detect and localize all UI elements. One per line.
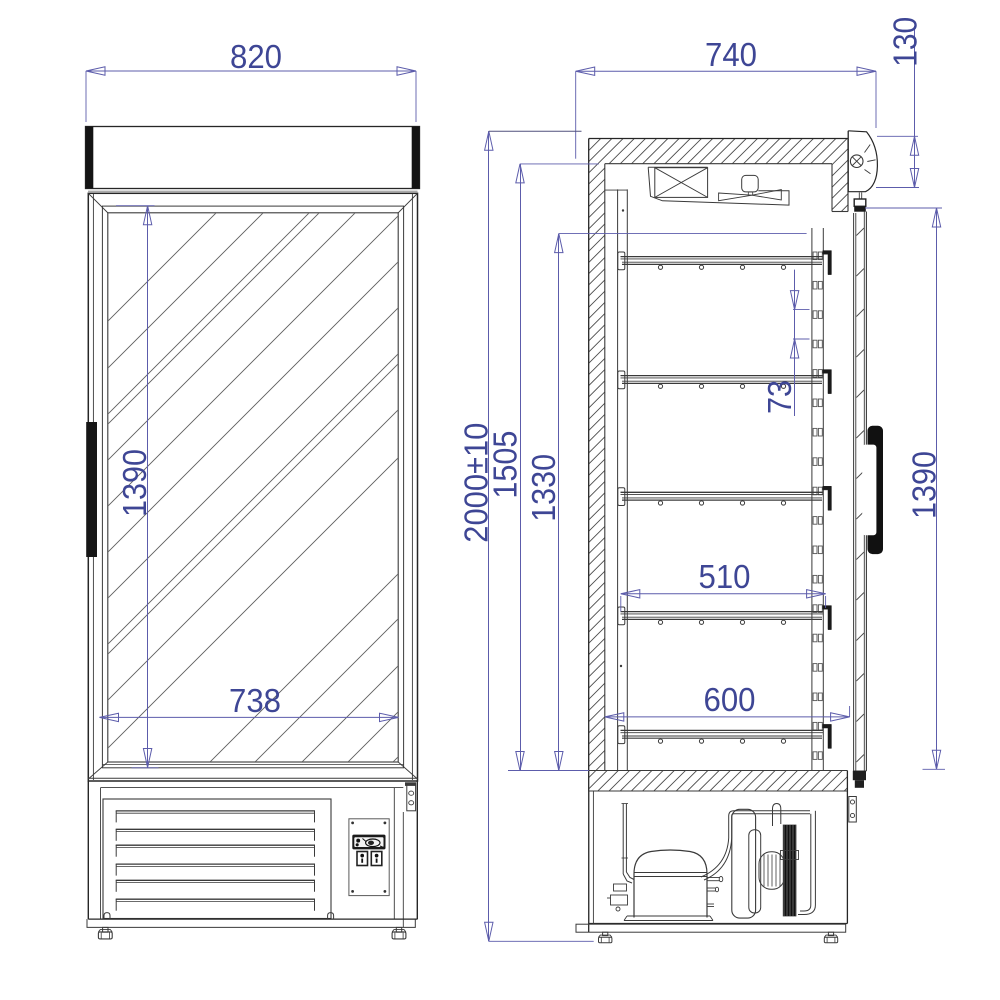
svg-text:1330: 1330 [525,454,562,522]
svg-text:738: 738 [229,682,281,719]
svg-text:820: 820 [230,38,282,75]
svg-text:600: 600 [704,681,756,718]
svg-text:1390: 1390 [116,449,153,517]
svg-text:740: 740 [705,36,757,73]
svg-text:73: 73 [761,380,798,414]
svg-text:130: 130 [887,17,924,67]
svg-text:510: 510 [699,558,751,595]
svg-text:1390: 1390 [905,451,942,519]
svg-text:1505: 1505 [487,431,524,499]
